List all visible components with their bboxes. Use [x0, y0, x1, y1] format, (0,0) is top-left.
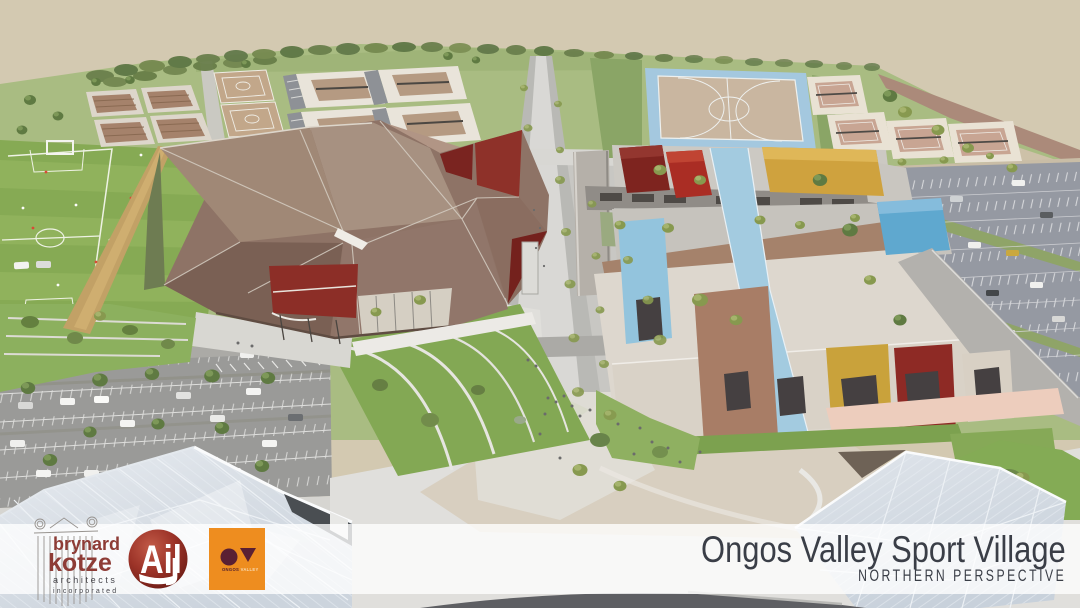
svg-text:kotze: kotze: [48, 549, 112, 577]
svg-text:ONGOS VALLEY: ONGOS VALLEY: [222, 567, 259, 572]
svg-text:architects: architects: [53, 575, 118, 585]
svg-text:incorporated: incorporated: [53, 588, 118, 595]
